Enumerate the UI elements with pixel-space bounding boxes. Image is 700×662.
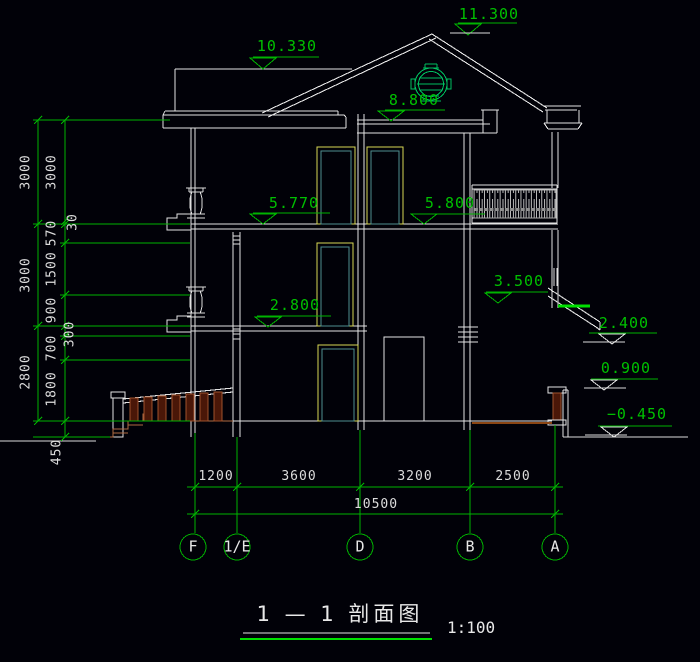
cad-drawing-canvas[interactable]: 11.300 10.330 8.800 5.770 5.800 3.500 2.… [0, 0, 700, 662]
dim-left-base-450: 450 [51, 439, 64, 465]
elevation-label-grade: −0.450 [607, 407, 667, 422]
elevation-label-parapet: 10.330 [257, 39, 317, 54]
dim-bottom-total: 10500 [354, 498, 398, 511]
ground-line [0, 437, 688, 441]
elevation-label-soffit: 2.400 [599, 316, 649, 331]
dim-left-small-30: 30 [67, 213, 80, 231]
balcony-balustrade [474, 190, 556, 218]
dim-left-outer-1: 3000 [20, 154, 33, 189]
elevation-label-porch-wall: 0.900 [601, 361, 651, 376]
elevation-label-floor3-left: 5.770 [269, 196, 319, 211]
baluster-section-icon [186, 188, 206, 317]
elevation-label-attic: 8.800 [389, 93, 439, 108]
dim-left-inner-4: 900 [46, 297, 59, 323]
section-title: 1 — 1 剖面图 [257, 604, 424, 625]
elevation-label-floor2: 2.800 [270, 298, 320, 313]
grid-bubble-label-f: F [188, 540, 197, 555]
section-linework [0, 0, 700, 662]
dim-left-inner-1: 3000 [46, 154, 59, 189]
dim-bottom-3: 3200 [397, 470, 432, 483]
entrance-stair [96, 392, 233, 437]
elevation-label-ridge: 11.300 [459, 7, 519, 22]
dim-bottom-4: 2500 [495, 470, 530, 483]
dim-left-outer-2: 3000 [20, 257, 33, 292]
porch-column [472, 387, 566, 425]
dim-bottom-1: 1200 [198, 470, 233, 483]
dim-left-inner-6: 1800 [46, 371, 59, 406]
dim-left-outer-3: 2800 [20, 354, 33, 389]
dim-left-inner-5: 700 [46, 335, 59, 361]
elevation-label-canopy: 3.500 [494, 274, 544, 289]
elevation-label-floor3-right: 5.800 [425, 196, 475, 211]
scale-label: 1:100 [447, 620, 495, 636]
grid-bubble-label-b: B [465, 540, 474, 555]
section-doors [317, 147, 424, 421]
dim-left-small-300: 300 [64, 321, 77, 347]
grid-bubble-label-a: A [550, 540, 559, 555]
dim-bottom-2: 3600 [281, 470, 316, 483]
dim-left-inner-2: 570 [46, 220, 59, 246]
grid-bubble-label-d: D [355, 540, 364, 555]
dim-left-inner-3: 1500 [46, 251, 59, 286]
grid-bubble-label-1e: 1/E [223, 540, 250, 555]
